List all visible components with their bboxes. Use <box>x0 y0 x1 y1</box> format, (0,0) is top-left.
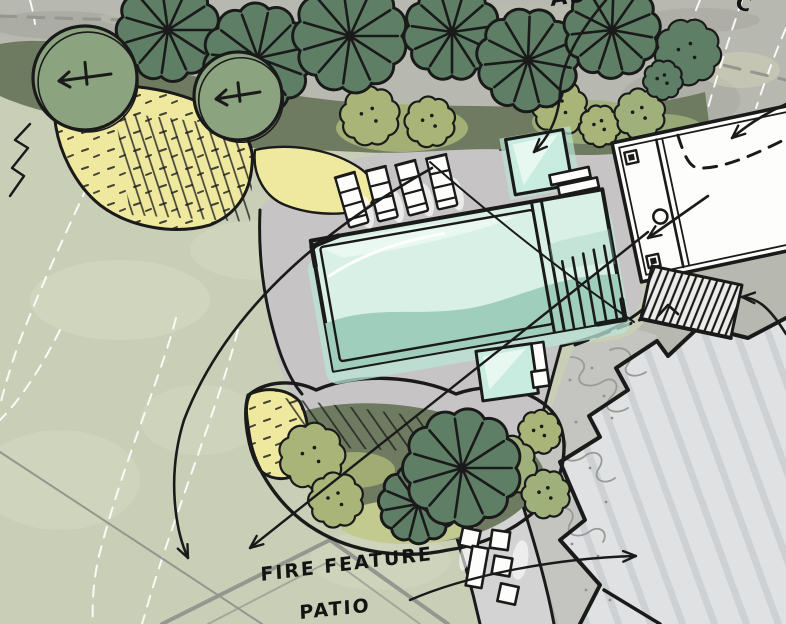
shrub <box>521 470 569 519</box>
patio-chair <box>490 530 510 550</box>
round-tree <box>33 26 138 132</box>
spa-lower <box>476 342 550 401</box>
shrub <box>404 96 454 147</box>
site-plan-canvas: ASTER C FIRE FEATURE PATIO <box>0 0 786 624</box>
patio-chair <box>497 583 518 604</box>
site-plan-drawing <box>0 0 786 624</box>
shrub <box>643 61 683 100</box>
